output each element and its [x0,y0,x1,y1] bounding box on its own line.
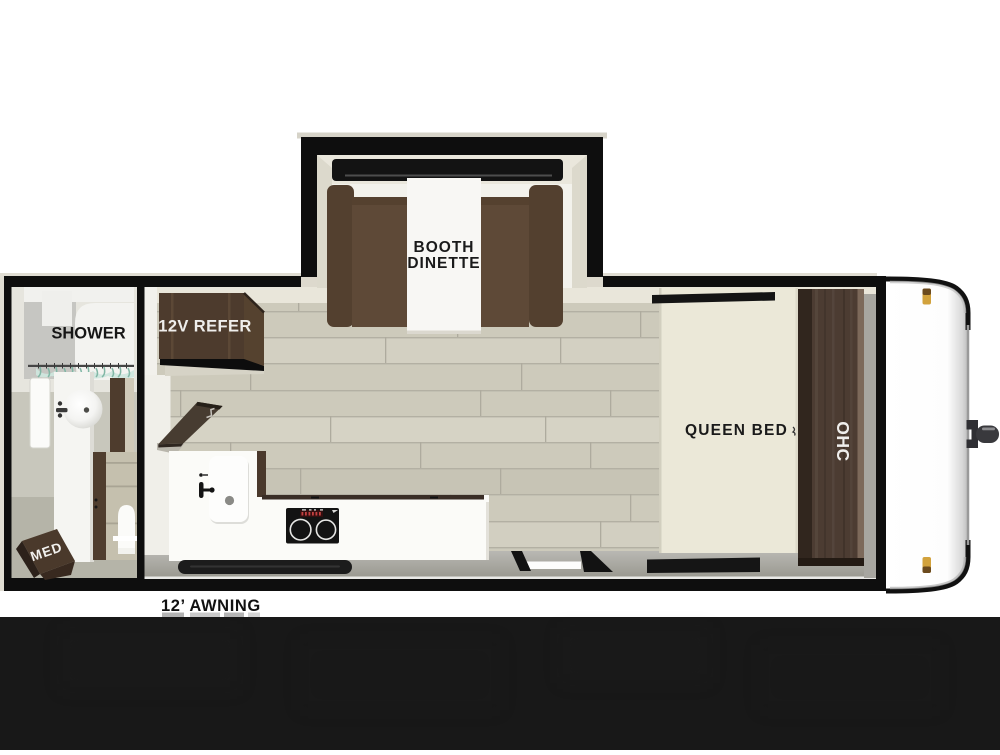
svg-text:OHC: OHC [833,421,853,461]
svg-text:12’ AWNING: 12’ AWNING [161,597,261,615]
svg-text:BOOTH: BOOTH [414,239,475,256]
svg-text:DINETTE: DINETTE [407,255,480,272]
svg-text:SHOWER: SHOWER [51,325,125,343]
svg-text:12V REFER: 12V REFER [158,318,251,336]
svg-text:QUEEN BED: QUEEN BED [685,422,788,439]
